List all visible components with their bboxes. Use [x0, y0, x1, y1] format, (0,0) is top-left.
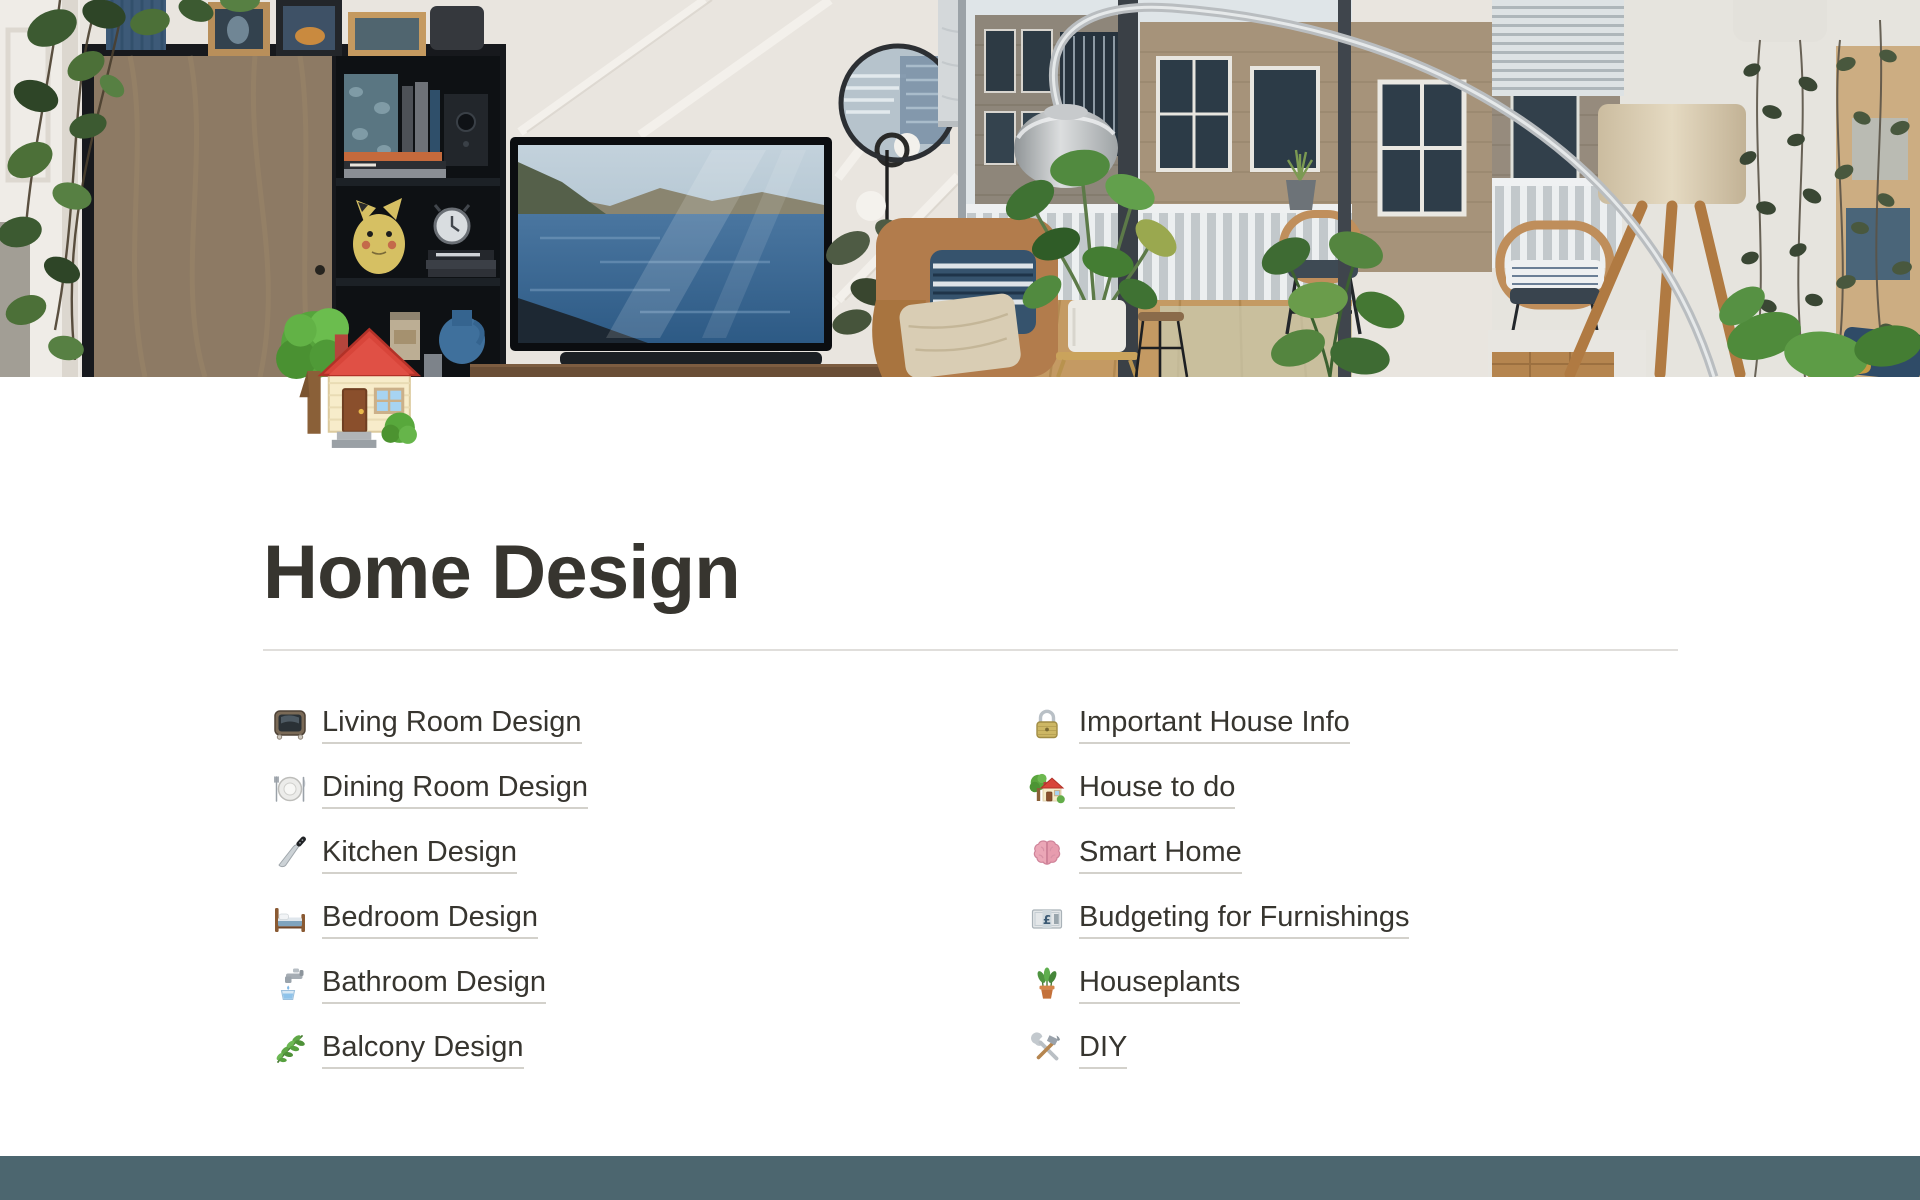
link-balcony-design[interactable]: Balcony Design — [263, 1026, 968, 1072]
link-label: House to do — [1079, 769, 1235, 809]
page-title[interactable]: Home Design — [263, 528, 1678, 618]
hammer-and-wrench-icon — [1029, 1031, 1065, 1067]
link-label: Smart Home — [1079, 834, 1242, 874]
link-label: Kitchen Design — [322, 834, 517, 874]
pound-banknote-icon — [1029, 901, 1065, 937]
potable-water-icon — [272, 966, 308, 1002]
link-diy[interactable]: DIY — [1020, 1026, 1678, 1072]
divider — [263, 649, 1678, 651]
page-body: Home Design Living Room Design Dining Ro… — [263, 528, 1678, 1091]
link-bedroom-design[interactable]: Bedroom Design — [263, 896, 968, 942]
link-label: Houseplants — [1079, 964, 1240, 1004]
link-label: Balcony Design — [322, 1029, 524, 1069]
link-living-room-design[interactable]: Living Room Design — [263, 701, 968, 747]
link-budgeting-for-furnishings[interactable]: Budgeting for Furnishings — [1020, 896, 1678, 942]
link-label: Important House Info — [1079, 704, 1350, 744]
fork-and-knife-with-plate-icon — [272, 771, 308, 807]
link-label: Living Room Design — [322, 704, 582, 744]
link-label: Budgeting for Furnishings — [1079, 899, 1409, 939]
column-right: Important House Info House to do Smart H… — [1020, 701, 1678, 1091]
link-important-house-info[interactable]: Important House Info — [1020, 701, 1678, 747]
house-with-garden-icon — [270, 300, 422, 452]
kitchen-knife-icon — [272, 836, 308, 872]
herb-icon — [272, 1031, 308, 1067]
bottom-bar — [0, 1156, 1920, 1200]
link-label: Bedroom Design — [322, 899, 538, 939]
link-houseplants[interactable]: Houseplants — [1020, 961, 1678, 1007]
tv-icon — [272, 706, 308, 742]
potted-plant-icon — [1029, 966, 1065, 1002]
link-smart-home[interactable]: Smart Home — [1020, 831, 1678, 877]
house-with-garden-icon — [1029, 771, 1065, 807]
link-label: Dining Room Design — [322, 769, 588, 809]
link-label: Bathroom Design — [322, 964, 546, 1004]
link-house-to-do[interactable]: House to do — [1020, 766, 1678, 812]
link-columns: Living Room Design Dining Room Design Ki… — [263, 701, 1678, 1091]
column-left: Living Room Design Dining Room Design Ki… — [263, 701, 968, 1091]
link-label: DIY — [1079, 1029, 1127, 1069]
brain-icon — [1029, 836, 1065, 872]
page-icon-house-with-garden[interactable] — [270, 300, 422, 452]
bed-icon — [272, 901, 308, 937]
lock-icon — [1029, 706, 1065, 742]
link-kitchen-design[interactable]: Kitchen Design — [263, 831, 968, 877]
link-bathroom-design[interactable]: Bathroom Design — [263, 961, 968, 1007]
link-dining-room-design[interactable]: Dining Room Design — [263, 766, 968, 812]
